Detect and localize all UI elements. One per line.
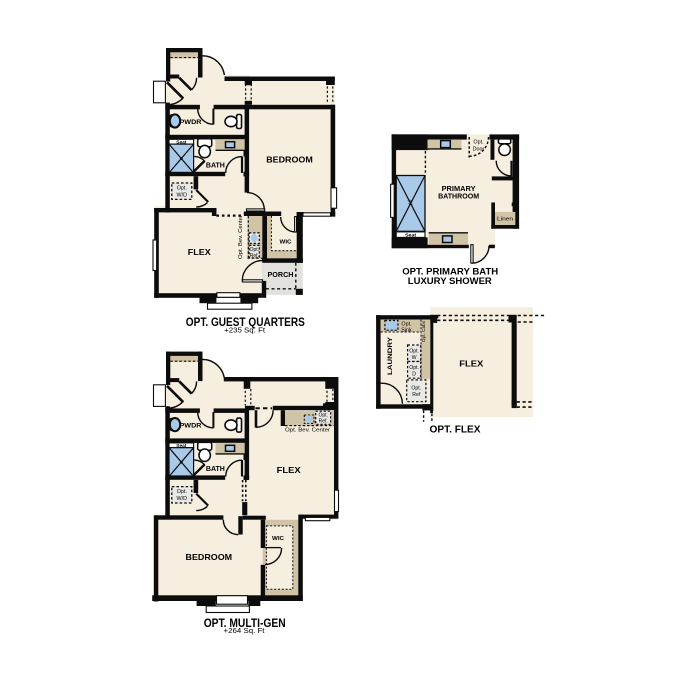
svg-text:PORCH: PORCH xyxy=(268,270,294,279)
svg-text:Opt.: Opt. xyxy=(411,385,421,391)
svg-text:FLEX: FLEX xyxy=(188,248,212,257)
svg-text:Opt.: Opt. xyxy=(177,186,187,192)
svg-text:FLEX: FLEX xyxy=(459,360,484,369)
svg-text:Opt. Bev. Center: Opt. Bev. Center xyxy=(238,215,244,259)
svg-text:BEDROOM: BEDROOM xyxy=(186,553,233,562)
svg-text:W/D: W/D xyxy=(177,192,188,198)
svg-text:BATHROOM: BATHROOM xyxy=(438,191,479,200)
svg-text:Opt.: Opt. xyxy=(409,348,419,354)
svg-text:Opt. Bev. Center: Opt. Bev. Center xyxy=(285,428,330,434)
svg-text:Opt.: Opt. xyxy=(401,321,411,327)
svg-text:PWDR: PWDR xyxy=(180,423,202,430)
svg-text:+235 Sq. Ft: +235 Sq. Ft xyxy=(224,325,265,334)
svg-text:LUXURY SHOWER: LUXURY SHOWER xyxy=(408,276,492,287)
svg-text:Opt.: Opt. xyxy=(177,489,187,495)
svg-text:PWDR: PWDR xyxy=(180,119,202,126)
svg-text:W: W xyxy=(412,355,417,361)
svg-text:W/D: W/D xyxy=(177,496,188,502)
svg-text:D: D xyxy=(412,372,416,378)
svg-text:Ref: Ref xyxy=(412,392,421,398)
svg-text:Seat: Seat xyxy=(405,232,417,237)
svg-text:Opt.: Opt. xyxy=(409,365,419,371)
svg-text:Opt.: Opt. xyxy=(318,413,327,419)
svg-text:Opt.: Opt. xyxy=(250,247,259,253)
svg-text:Tile: Tile xyxy=(408,202,413,206)
svg-text:BATH: BATH xyxy=(206,464,225,473)
svg-text:Opt. Cabs: Opt. Cabs xyxy=(421,320,426,342)
svg-text:BEDROOM: BEDROOM xyxy=(266,156,313,165)
svg-text:FLEX: FLEX xyxy=(277,466,302,475)
svg-text:+264 Sq. Ft: +264 Sq. Ft xyxy=(224,626,265,635)
svg-text:OPT. FLEX: OPT. FLEX xyxy=(430,425,481,436)
svg-text:Ref.: Ref. xyxy=(319,419,328,425)
svg-text:Linen: Linen xyxy=(497,217,513,223)
svg-text:WIC: WIC xyxy=(280,240,292,246)
svg-text:Ref.: Ref. xyxy=(250,253,259,259)
svg-text:Door: Door xyxy=(473,147,485,153)
svg-text:BATH: BATH xyxy=(206,160,225,169)
svg-text:Sink: Sink xyxy=(401,328,412,334)
svg-text:Opt.: Opt. xyxy=(473,140,483,146)
svg-text:LAUNDRY: LAUNDRY xyxy=(387,336,394,375)
svg-text:WIC: WIC xyxy=(272,536,284,542)
